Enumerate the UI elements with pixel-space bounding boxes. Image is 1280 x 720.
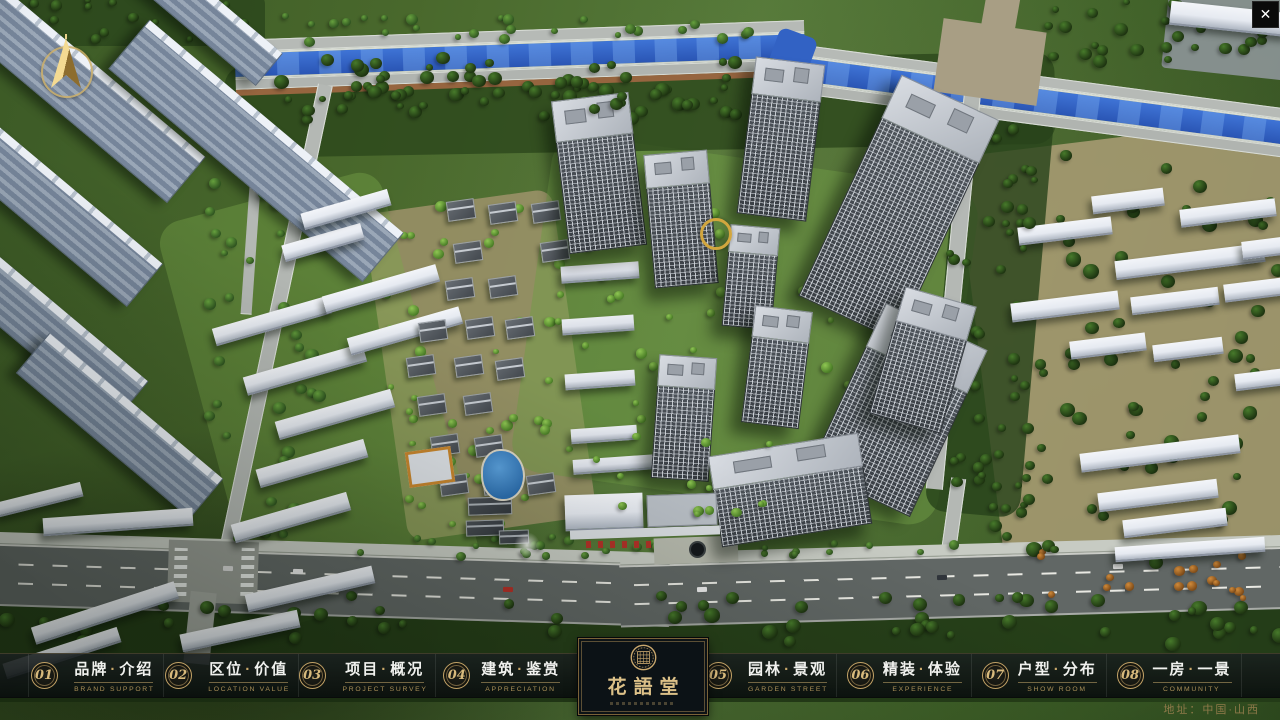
tree (1271, 264, 1280, 277)
tree (1079, 48, 1092, 60)
tree (456, 552, 466, 561)
tree (433, 249, 445, 260)
tree (375, 606, 386, 616)
tree (491, 229, 499, 236)
logo-name: 花語堂 (600, 672, 685, 699)
tree (614, 291, 625, 301)
nav-item-labels: 户型·分布 SHOW ROOM (1018, 658, 1097, 694)
tree (1164, 56, 1172, 63)
tower-roof (643, 149, 710, 188)
tree (329, 19, 339, 28)
tree (1059, 21, 1072, 33)
site-plan-render (0, 0, 1280, 720)
tree (946, 250, 953, 257)
tree (1023, 217, 1036, 229)
tree (1161, 275, 1176, 288)
tree (1008, 353, 1021, 365)
tree (1025, 461, 1035, 470)
nav-item-floorplan-distribution[interactable]: 07 户型·分布 SHOW ROOM (971, 654, 1106, 697)
tree (85, 3, 92, 10)
tree (1006, 229, 1013, 236)
tower-building (651, 354, 718, 482)
nav-item-room-view[interactable]: 08 一房·一景 COMMUNITY (1106, 654, 1241, 697)
nav-number-badge: 04 (443, 662, 470, 689)
separator-dot: · (1189, 661, 1196, 678)
separator-dot: · (784, 661, 791, 678)
nav-item-labels: 精装·体验 EXPERIENCE (883, 658, 962, 694)
tree (1020, 381, 1030, 390)
tree (204, 411, 215, 421)
tree (506, 25, 516, 34)
tree (465, 63, 476, 73)
rooftop-unit (732, 456, 771, 473)
tree (406, 408, 413, 415)
nav-number-badge: 03 (299, 662, 326, 689)
separator-dot: · (381, 661, 388, 678)
nav-item-project-overview[interactable]: 03 项目·概况 PROJECT SURVEY (298, 654, 435, 697)
tree (408, 305, 419, 316)
nav-number-badge: 06 (847, 662, 874, 689)
tree (701, 438, 710, 447)
tree (996, 265, 1006, 274)
tree (633, 400, 639, 406)
tree (1272, 628, 1280, 643)
tree (291, 330, 302, 340)
rooftop-unit (681, 156, 695, 170)
nav-item-title: 精装·体验 (883, 658, 962, 683)
title-part: 精装 (883, 661, 917, 678)
separator-dot: · (110, 661, 117, 678)
tree (1219, 43, 1232, 55)
logo-seal-icon (630, 644, 657, 671)
tree (1187, 581, 1198, 591)
tree (717, 33, 729, 44)
logo-tagline (610, 702, 676, 705)
title-part: 建筑 (481, 661, 515, 678)
tree (719, 58, 728, 66)
rooftop-unit (796, 444, 827, 461)
tree (726, 592, 739, 604)
tree (678, 26, 687, 35)
tree (1171, 360, 1180, 369)
nav-item-title: 一房·一景 (1153, 658, 1232, 683)
separator-dot: · (919, 661, 926, 678)
tree (302, 105, 315, 117)
nav-item-landscape[interactable]: 05 园林·景观 GARDEN STREET (702, 654, 837, 697)
tree (30, 0, 39, 8)
tree (706, 485, 712, 491)
nav-item-location-value[interactable]: 02 区位·价值 LOCATION VALUE (163, 654, 298, 697)
tree (620, 72, 631, 83)
tree (1233, 473, 1241, 481)
rooftop-unit (565, 108, 587, 124)
title-part: 一房 (1153, 661, 1187, 678)
tree (529, 86, 542, 98)
tree (419, 102, 427, 110)
tree (1161, 42, 1173, 53)
nav-item-brand-intro[interactable]: 01 品牌·介绍 BRAND SUPPORT (28, 654, 163, 697)
tree (582, 342, 589, 349)
tree (1066, 252, 1082, 266)
tree (989, 503, 998, 511)
tree (786, 619, 801, 633)
nav-item-interior-experience[interactable]: 06 精装·体验 EXPERIENCE (836, 654, 971, 697)
tree (557, 291, 565, 298)
tree (542, 552, 550, 559)
tree (540, 425, 550, 435)
title-part: 区位 (209, 661, 243, 678)
tree (995, 594, 1003, 602)
tree (295, 343, 305, 352)
tree (625, 24, 636, 34)
tree (682, 100, 692, 110)
tree (1250, 626, 1258, 634)
tree (370, 58, 382, 69)
tree (1048, 52, 1058, 61)
accent-building (405, 446, 456, 488)
tree (1197, 412, 1208, 422)
tree (1091, 594, 1105, 607)
tree (473, 543, 479, 549)
flag (633, 540, 638, 547)
row-building (0, 481, 84, 516)
tree (246, 257, 254, 264)
rooftop-unit (762, 314, 779, 327)
tree (795, 601, 809, 613)
tree (544, 317, 555, 328)
title-part: 景观 (793, 661, 827, 678)
navbar-end-spacer (1241, 654, 1280, 697)
tree (342, 18, 351, 26)
tree (1123, 0, 1130, 5)
title-part: 体验 (928, 661, 962, 678)
villa (531, 200, 562, 224)
tree (266, 497, 277, 507)
tree (1172, 31, 1185, 43)
villa (495, 357, 526, 381)
tree (548, 625, 562, 638)
title-part: 鉴赏 (526, 661, 560, 678)
tree (1087, 504, 1097, 514)
nav-item-subtitle: APPRECIATION (485, 685, 556, 693)
tree (409, 415, 417, 423)
tree (1044, 22, 1053, 30)
tree (1035, 359, 1046, 370)
tower-roof (657, 354, 717, 390)
tree (1113, 318, 1125, 329)
tree (1045, 600, 1059, 613)
separator-dot: · (517, 661, 524, 678)
nav-item-labels: 园林·景观 GARDEN STREET (741, 658, 835, 694)
tree (378, 622, 392, 634)
rooftop-unit (692, 362, 705, 375)
tree (784, 636, 796, 647)
tree (1258, 221, 1268, 230)
tree (344, 91, 353, 100)
masterplan-3d-view[interactable]: ✕ 01 品牌·介绍 BRAND SUPPORT 02 区位·价值 LOCATI… (0, 0, 1280, 720)
tree (1016, 507, 1027, 518)
close-button[interactable]: ✕ (1252, 1, 1279, 28)
rooftop-unit (667, 363, 683, 375)
tower-facade (737, 94, 821, 222)
tree (687, 480, 696, 489)
tree (1031, 177, 1038, 184)
tree (728, 56, 742, 69)
tree (406, 14, 418, 25)
tree (1235, 331, 1249, 344)
nav-item-architecture[interactable]: 04 建筑·鉴赏 APPRECIATION (435, 654, 570, 697)
nav-item-labels: 品牌·介绍 BRAND SUPPORT (67, 658, 162, 694)
project-address: 地址：中国·山西 (1163, 701, 1260, 717)
tree (274, 75, 289, 89)
tree (313, 390, 326, 402)
nav-item-title: 项目·概况 (345, 658, 424, 683)
tree (1085, 322, 1099, 334)
tree (992, 482, 1002, 491)
villa (444, 277, 475, 301)
tree (962, 259, 970, 267)
tree (649, 362, 658, 370)
tree (1052, 6, 1059, 13)
tree (218, 605, 232, 618)
tree (1125, 582, 1134, 591)
tower-roof (752, 305, 813, 344)
tree (593, 456, 600, 463)
tree (187, 36, 193, 42)
tree (1213, 580, 1220, 586)
title-part: 价值 (254, 661, 288, 678)
tree (221, 250, 228, 257)
tree (285, 96, 292, 103)
tree (426, 64, 433, 71)
tree (1037, 553, 1045, 560)
tree (1100, 627, 1111, 637)
nav-item-labels: 区位·价值 LOCATION VALUE (201, 658, 297, 694)
tree (405, 495, 414, 503)
nav-item-subtitle: COMMUNITY (1163, 685, 1220, 693)
rooftop-unit (911, 299, 933, 316)
sales-canopy (564, 493, 643, 532)
villa (446, 198, 477, 222)
crosswalk (240, 548, 255, 596)
tree (707, 309, 715, 317)
tree (128, 13, 138, 23)
tree (615, 32, 622, 38)
nav-item-title: 园林·景观 (748, 658, 827, 683)
tree (1128, 402, 1138, 412)
tower-facade (556, 134, 647, 255)
villa (462, 392, 493, 416)
rooftop-unit (737, 232, 751, 243)
car (1113, 563, 1123, 568)
rooftop-unit (947, 108, 974, 133)
tower-facade (651, 386, 715, 482)
nav-number-badge: 02 (165, 662, 192, 689)
tree (407, 232, 415, 239)
tree (223, 432, 230, 439)
garden-ring (700, 218, 732, 250)
tree (762, 625, 778, 639)
tree (0, 613, 15, 628)
nav-number-badge: 05 (705, 662, 732, 689)
tree (1015, 482, 1022, 489)
tree (351, 81, 362, 92)
flag (621, 540, 626, 547)
tree (225, 293, 234, 302)
tree (337, 104, 348, 114)
tree (381, 15, 388, 21)
tree (1039, 369, 1048, 378)
tree (485, 59, 494, 68)
tree (382, 29, 389, 36)
tree (1114, 23, 1128, 36)
tree (503, 14, 514, 24)
tree (992, 134, 1002, 144)
car (293, 568, 303, 573)
nav-item-subtitle: EXPERIENCE (892, 685, 953, 693)
tree (581, 552, 589, 559)
tree (1068, 359, 1080, 370)
car (697, 586, 707, 591)
tree (650, 89, 662, 100)
title-part: 户型 (1018, 661, 1052, 678)
tree (656, 591, 667, 601)
separator-dot: · (245, 661, 252, 678)
tree (1060, 150, 1072, 161)
car (223, 565, 233, 570)
tree (637, 415, 646, 423)
compass-north-icon (36, 34, 96, 96)
tree (607, 295, 615, 303)
title-part: 园林 (748, 661, 782, 678)
title-part: 品牌 (74, 661, 108, 678)
tree (743, 27, 754, 37)
nav-item-subtitle: LOCATION VALUE (208, 685, 290, 693)
tree (211, 229, 222, 239)
sun-flare (514, 532, 540, 558)
villa (406, 354, 437, 378)
tree (493, 88, 505, 99)
villa (539, 239, 570, 263)
tree (866, 542, 873, 549)
flag (585, 540, 590, 547)
row-building (43, 508, 194, 536)
tree (214, 356, 225, 366)
tree (205, 207, 215, 216)
tree (545, 377, 553, 384)
tree (1001, 504, 1011, 513)
tree (1008, 124, 1019, 135)
tree (1161, 163, 1172, 174)
tree (499, 34, 511, 45)
nav-item-subtitle: PROJECT SURVEY (342, 685, 427, 693)
tree (361, 15, 368, 21)
tree (676, 601, 687, 612)
tree (879, 592, 892, 604)
nav-item-labels: 一房·一景 COMMUNITY (1153, 658, 1232, 694)
tree (282, 13, 288, 19)
tree (731, 508, 742, 518)
tree (580, 16, 588, 23)
title-part: 介绍 (119, 661, 153, 678)
tree (828, 317, 834, 323)
nav-item-title: 户型·分布 (1018, 658, 1097, 683)
tree (722, 74, 730, 82)
rooftop-unit (941, 304, 959, 321)
rooftop-unit (654, 162, 672, 175)
tree (694, 511, 701, 518)
villa (465, 316, 496, 340)
separator-dot: · (1054, 661, 1061, 678)
tree (209, 178, 221, 189)
nav-number-badge: 08 (1117, 662, 1144, 689)
tree (1208, 376, 1219, 386)
nav-number-badge: 01 (31, 662, 58, 689)
tree (636, 348, 648, 359)
tree (668, 611, 682, 624)
tree (602, 548, 609, 555)
tree (1037, 444, 1046, 452)
tree (440, 238, 448, 246)
tree (1083, 264, 1099, 278)
nav-item-title: 建筑·鉴赏 (481, 658, 560, 683)
nav-number-badge: 07 (982, 662, 1009, 689)
title-part: 项目 (345, 661, 379, 678)
tree (1002, 220, 1010, 227)
tree (589, 63, 601, 74)
tree (1229, 587, 1236, 594)
tree (1213, 561, 1221, 568)
tree (391, 91, 401, 100)
rooftop-unit (905, 93, 937, 119)
nav-item-labels: 建筑·鉴赏 APPRECIATION (479, 658, 562, 694)
tree (1023, 494, 1035, 505)
villa (418, 319, 449, 343)
title-part: 一景 (1198, 661, 1232, 678)
project-logo[interactable]: 花語堂 (578, 638, 708, 715)
car (937, 574, 947, 579)
tree (418, 502, 425, 509)
rooftop-unit (758, 231, 770, 243)
tree (420, 71, 434, 83)
tree (555, 77, 568, 89)
tree (368, 86, 382, 98)
nav-item-labels: 项目·概况 PROJECT SURVEY (335, 658, 435, 694)
tree (204, 298, 217, 310)
tree (279, 530, 288, 538)
tree (974, 414, 985, 424)
tree (1169, 610, 1181, 621)
tree (1010, 392, 1020, 401)
tree (413, 25, 420, 32)
tree (549, 534, 556, 540)
tree (428, 538, 436, 546)
tree (1001, 201, 1014, 213)
tree (1093, 55, 1107, 68)
tree (566, 446, 573, 452)
nav-item-subtitle: BRAND SUPPORT (74, 685, 155, 693)
tree (164, 618, 175, 628)
rooftop-unit (786, 314, 799, 328)
nav-item-title: 品牌·介绍 (74, 658, 153, 683)
tree (100, 28, 109, 37)
title-part: 概况 (390, 661, 424, 678)
tree (1022, 474, 1031, 483)
car (503, 586, 513, 591)
tree (308, 21, 314, 27)
tree (983, 216, 995, 227)
flag (645, 540, 650, 547)
